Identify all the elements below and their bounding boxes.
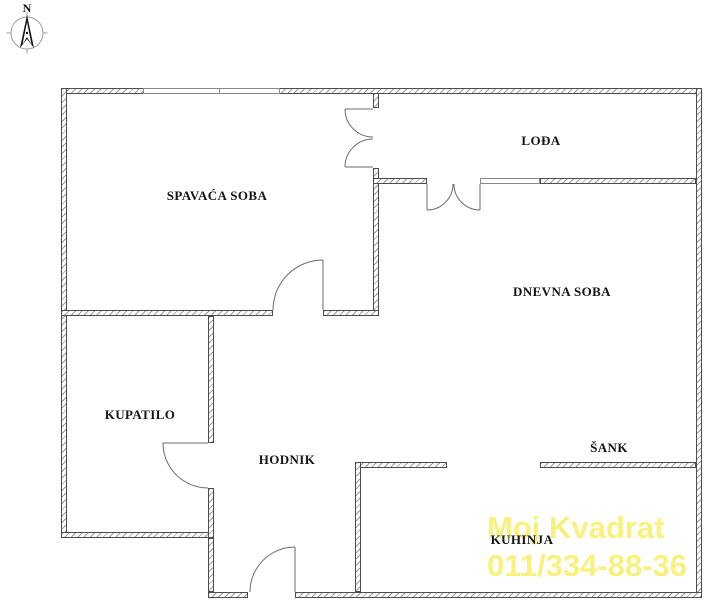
loggia-living-double-door [427, 184, 480, 210]
bathroom-door [163, 443, 208, 488]
floor-plan: N Moj Kvadrat 011/334-88-36 SPAVAĆA SOBA… [0, 0, 704, 600]
room-label-sank: ŠANK [590, 440, 628, 456]
bedroom-door [273, 260, 323, 310]
room-label-lodja: LOĐA [521, 133, 560, 149]
room-label-spavaca-soba: SPAVAĆA SOBA [167, 188, 268, 204]
entrance-door [250, 547, 295, 592]
watermark-phone: 011/334-88-36 [487, 547, 687, 585]
room-label-kupatilo: KUPATILO [105, 407, 176, 423]
room-label-dnevna-soba: DNEVNA SOBA [513, 284, 611, 300]
room-label-hodnik: HODNIK [259, 452, 316, 468]
bedroom-loggia-double-door [345, 109, 373, 167]
room-label-kuhinja: KUHINJA [491, 532, 554, 548]
